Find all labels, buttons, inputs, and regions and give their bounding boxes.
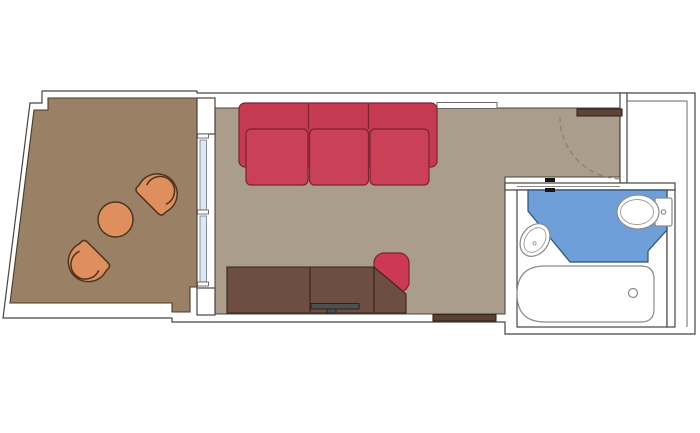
tv-stand bbox=[327, 309, 336, 313]
glass-frame-tick-bottom bbox=[198, 282, 209, 286]
glass-door-bottom-cap bbox=[197, 288, 215, 315]
glass-frame-tick-top bbox=[198, 134, 209, 138]
glass-frame-tick-mid bbox=[198, 210, 209, 214]
balcony-table bbox=[98, 202, 133, 237]
bathroom-door-handle-outer bbox=[545, 178, 555, 182]
entrance-door-leaf bbox=[577, 109, 622, 116]
glass-panel-upper bbox=[200, 140, 207, 210]
entry-right-wall bbox=[620, 93, 627, 183]
toilet-flush-button bbox=[661, 210, 665, 214]
sofa-cushion-right bbox=[370, 129, 429, 185]
toilet-bowl bbox=[617, 195, 659, 229]
sofa-cushion-left bbox=[246, 129, 308, 185]
desk-tv-cabinet bbox=[227, 267, 406, 313]
sofa bbox=[239, 103, 437, 185]
tv bbox=[311, 304, 359, 310]
bottom-wall-cabinet-strip bbox=[433, 315, 496, 322]
floorplan-page bbox=[0, 0, 700, 433]
glass-panel-lower bbox=[200, 216, 207, 282]
floorplan-canvas bbox=[0, 0, 700, 433]
bathtub-drain bbox=[629, 289, 638, 298]
toilet bbox=[617, 195, 672, 229]
sofa-cushion-middle bbox=[310, 129, 369, 185]
glass-door-top-cap bbox=[197, 98, 215, 134]
bathtub bbox=[517, 266, 654, 322]
bathroom-door-handle-inner bbox=[545, 188, 555, 192]
top-wall-recess bbox=[437, 103, 497, 109]
